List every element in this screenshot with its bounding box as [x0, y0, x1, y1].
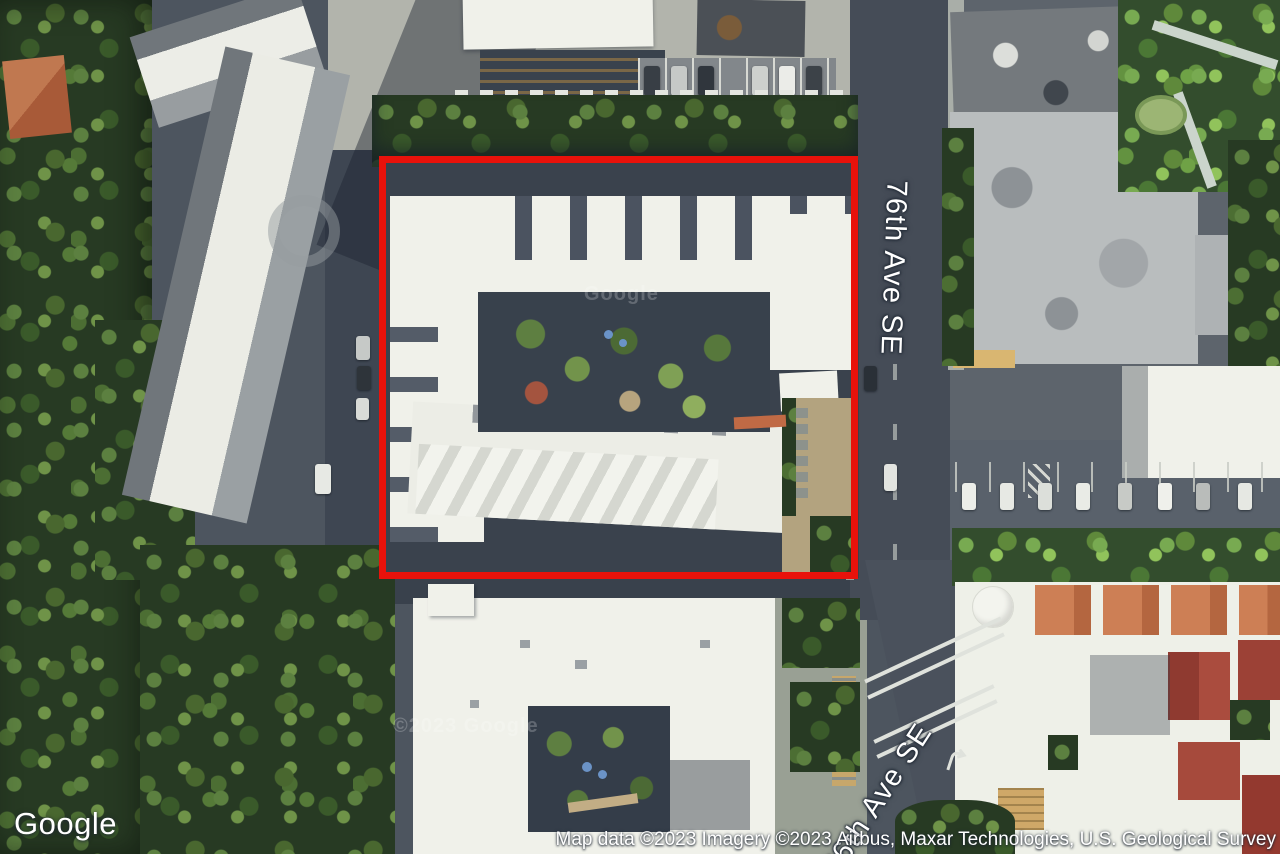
terracotta-roof — [1171, 585, 1227, 635]
roof-shade — [670, 760, 750, 830]
parked-car — [1000, 483, 1014, 510]
maroon-roof — [1178, 742, 1240, 800]
maroon-roof — [1168, 652, 1230, 720]
tree-row-parking — [952, 528, 1280, 586]
patio-umbrella — [582, 762, 592, 772]
car-on-road — [884, 464, 897, 491]
roof-vent — [520, 640, 530, 648]
street-label-76th-ave-se: 76th Ave SE — [875, 180, 910, 356]
roof-vent — [575, 660, 587, 669]
satellite-map[interactable]: Google ©2023 Google 76th Ave SE 76th Ave… — [0, 0, 1280, 854]
park-path — [1152, 20, 1279, 70]
parked-car — [356, 336, 370, 360]
parked-car — [1158, 483, 1172, 510]
trees-south-walk — [782, 598, 860, 668]
courtyard-trees — [1048, 735, 1078, 770]
parcel-outline — [379, 156, 858, 579]
car-on-road — [864, 366, 877, 391]
building-north-dark-roof — [697, 0, 806, 57]
lane-dashes — [893, 330, 897, 560]
building-north-white-roof — [462, 0, 653, 50]
parked-car — [1118, 483, 1132, 510]
circular-driveway — [268, 195, 340, 267]
imagery-watermark: ©2023 Google — [393, 716, 539, 736]
garden-bed — [1135, 95, 1187, 135]
forest-southwest — [140, 545, 395, 854]
parked-car — [357, 366, 371, 390]
map-attribution: Map data ©2023 Imagery ©2023 Airbus, Max… — [556, 830, 1276, 849]
google-logo[interactable]: Google — [14, 808, 117, 839]
tree-row-east-of-road — [942, 128, 974, 366]
parked-car — [1196, 483, 1210, 510]
rooftop-structure — [428, 584, 474, 616]
courtyard-shade — [1090, 655, 1170, 735]
terracotta-roof — [1103, 585, 1159, 635]
parked-car — [1038, 483, 1052, 510]
parked-car — [356, 398, 369, 420]
patio-umbrella — [598, 770, 607, 779]
terracotta-roof — [1035, 585, 1091, 635]
parked-car — [1076, 483, 1090, 510]
parked-van — [315, 464, 331, 494]
courtyard-trees — [1230, 700, 1270, 740]
roof-vent — [470, 700, 479, 708]
maroon-roof — [1238, 640, 1280, 700]
patio-path — [568, 793, 639, 813]
trees-south-walk — [790, 682, 860, 772]
house-terracotta-roof — [2, 55, 72, 139]
terracotta-roof — [1239, 585, 1280, 635]
parked-car — [1238, 483, 1252, 510]
roof-vent — [700, 640, 710, 648]
rooftop-courtyard — [528, 706, 670, 832]
parked-car — [962, 483, 976, 510]
